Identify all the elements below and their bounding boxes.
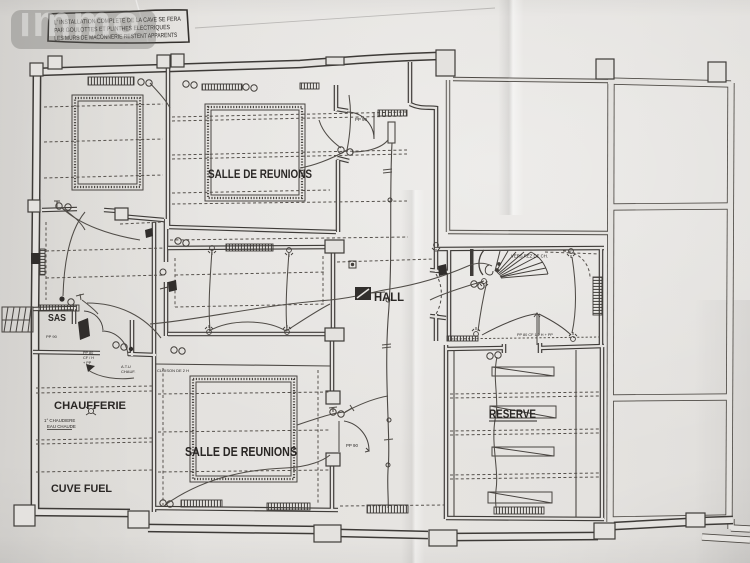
svg-text:1° CHAUDIERE: 1° CHAUDIERE (44, 418, 75, 423)
svg-text:CF / H: CF / H (83, 356, 94, 360)
svg-text:SAS: SAS (48, 312, 66, 324)
svg-text:RESERVE: RESERVE (489, 409, 536, 421)
svg-text:SALLE DE REUNIONS: SALLE DE REUNIONS (185, 445, 297, 459)
svg-text:VERS REZ DE CH.: VERS REZ DE CH. (511, 254, 548, 259)
svg-text:SALLE DE REUNIONS: SALLE DE REUNIONS (208, 167, 312, 181)
svg-text:CHAUFFERIE: CHAUFFERIE (54, 400, 126, 412)
svg-text:CHAUF.: CHAUF. (121, 369, 135, 374)
svg-text:PP 90: PP 90 (355, 117, 367, 122)
svg-text:CLOISON DE 2 H: CLOISON DE 2 H (157, 368, 189, 373)
svg-text:+ PP: + PP (83, 361, 92, 365)
svg-text:HALL: HALL (374, 290, 404, 304)
svg-text:CUVE FUEL: CUVE FUEL (51, 483, 112, 495)
svg-text:PP 80 CF 1/2 H + PP: PP 80 CF 1/2 H + PP (517, 333, 553, 337)
svg-text:PP 90: PP 90 (346, 443, 358, 448)
svg-text:EAU CHAUDE: EAU CHAUDE (47, 424, 76, 429)
svg-text:PP 80: PP 80 (83, 351, 93, 355)
svg-text:PP 90: PP 90 (46, 334, 58, 339)
